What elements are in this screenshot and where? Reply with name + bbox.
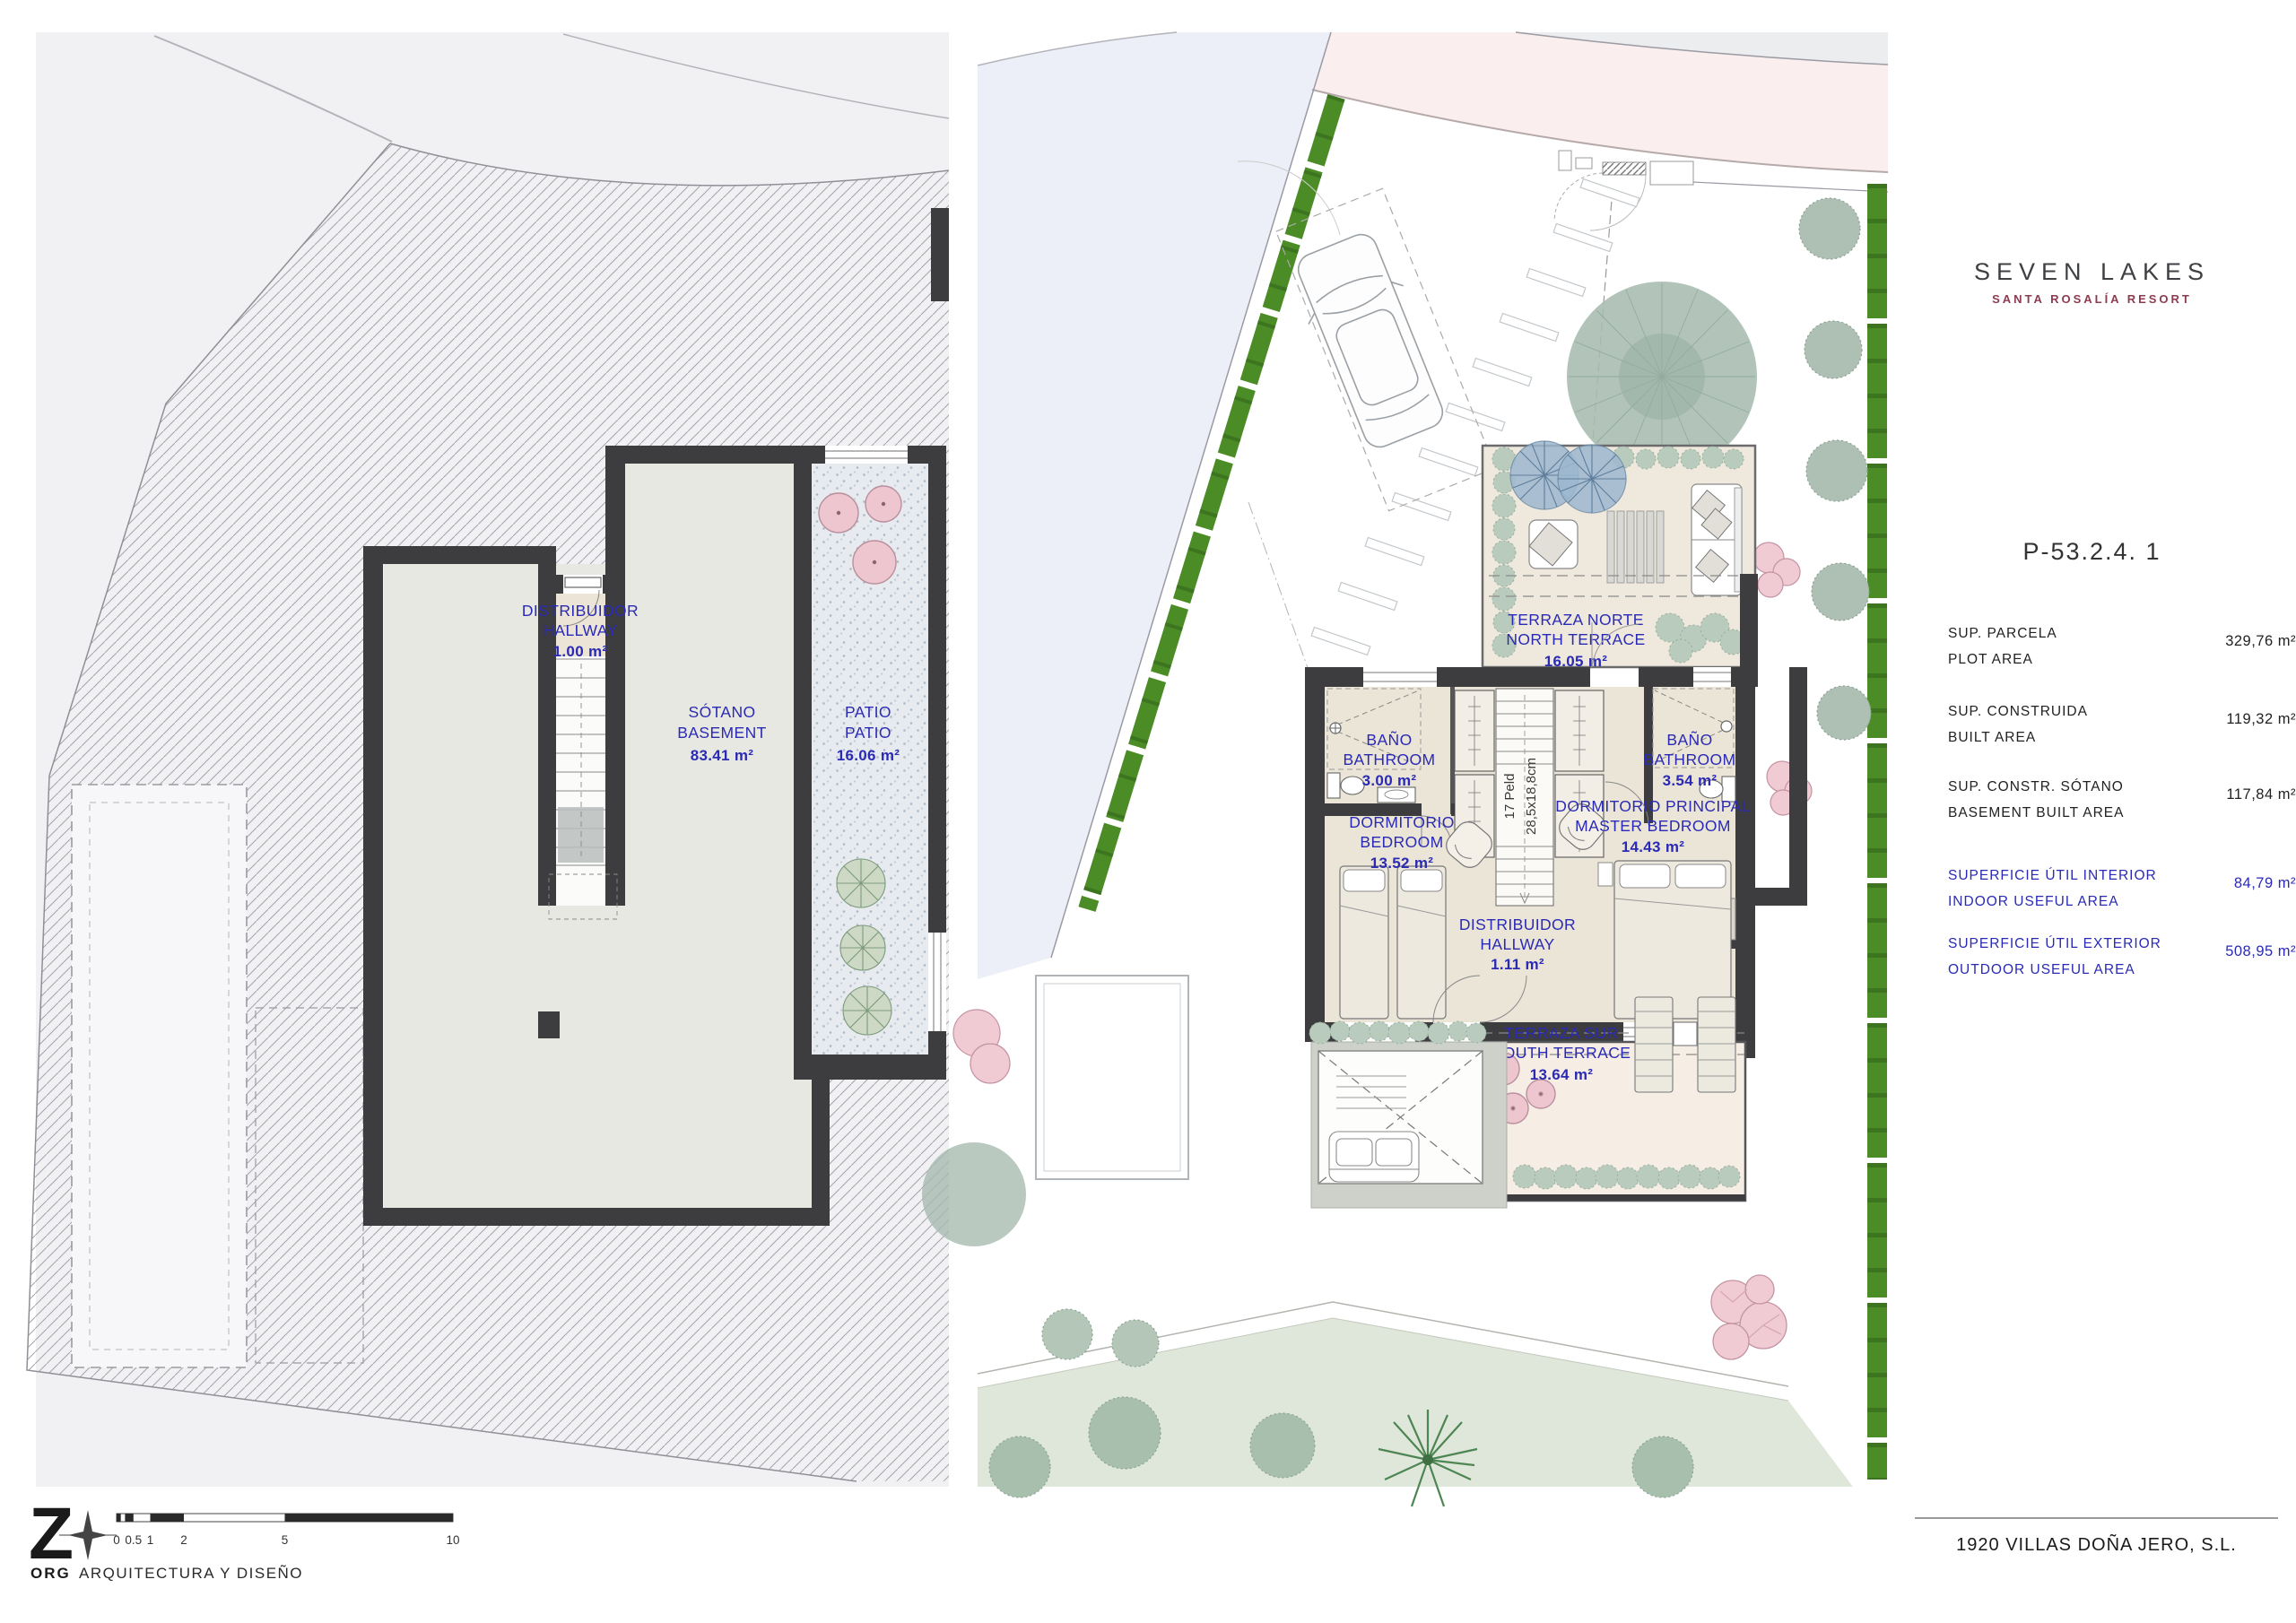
patio-void	[1309, 1021, 1507, 1208]
label-master-en: MASTER BEDROOM	[1575, 817, 1731, 835]
car	[1284, 226, 1457, 456]
label-basement-area: 83.41 m²	[691, 747, 753, 764]
architect-org: ORG	[30, 1565, 71, 1583]
scale-bar: 0 0.5 1 2 5 10	[113, 1514, 459, 1547]
label-master-es: DORMITORIO PRINCIPAL	[1555, 797, 1750, 815]
label-bathroom2-area: 3.54 m²	[1663, 772, 1718, 789]
south-terrace-bushes	[1513, 1165, 1740, 1189]
brand-name: SEVEN LAKES	[1888, 258, 2296, 286]
label-patio-area: 16.06 m²	[837, 747, 900, 764]
area-label-en: PLOT AREA	[1948, 647, 2244, 673]
area-label-es: SUP. PARCELA	[1948, 621, 2244, 647]
label-south-terrace-area: 13.64 m²	[1530, 1066, 1593, 1083]
label-basement-hallway-es: DISTRIBUIDOR	[522, 602, 639, 620]
stair-note-line2: 28,5x18,8cm	[1524, 758, 1539, 835]
label-basement-en: BASEMENT	[677, 724, 766, 742]
basement-plan-panel: DISTRIBUIDOR HALLWAY 1.00 m² SÓTANO BASE…	[27, 32, 949, 1487]
architect-logo: Z	[29, 1506, 72, 1562]
architect-name: ARQUITECTURA Y DISEÑO	[79, 1565, 303, 1583]
area-label-en: OUTDOOR USEFUL AREA	[1948, 957, 2244, 983]
label-south-terrace-en: SOUTH TERRACE	[1492, 1044, 1631, 1062]
area-row-basement: SUP. CONSTR. SÓTANO BASEMENT BUILT AREA …	[1948, 774, 2244, 826]
nightstand	[1598, 863, 1613, 886]
label-bedroom-es: DORMITORIO	[1349, 813, 1454, 831]
scale-tick-2: 2	[180, 1533, 187, 1547]
label-hallway-es: DISTRIBUIDOR	[1459, 916, 1576, 933]
area-value: 508,95 m²	[2225, 943, 2296, 960]
area-value: 329,76 m²	[2225, 633, 2296, 650]
label-bedroom-area: 13.52 m²	[1370, 855, 1433, 872]
area-value: 119,32 m²	[2226, 711, 2296, 728]
scale-tick-10: 10	[446, 1533, 459, 1547]
label-basement-es: SÓTANO	[689, 702, 756, 721]
pink-shrubs-west	[953, 1010, 1010, 1083]
label-patio-en: PATIO	[845, 724, 891, 742]
area-label-es: SUP. CONSTR. SÓTANO	[1948, 774, 2244, 800]
label-basement-hallway-area: 1.00 m²	[553, 643, 608, 660]
area-label-es: SUPERFICIE ÚTIL EXTERIOR	[1948, 931, 2244, 957]
patio-couch	[1329, 1132, 1419, 1182]
pool	[1036, 976, 1188, 1179]
label-bathroom1-en: BATHROOM	[1343, 751, 1435, 768]
basement-floor-strip	[794, 1080, 812, 1208]
plot-boundary-north	[1692, 182, 1888, 192]
label-patio-es: PATIO	[845, 703, 891, 721]
area-label-es: SUP. CONSTRUIDA	[1948, 699, 2244, 725]
edge-tree	[922, 1142, 1026, 1246]
label-bedroom-en: BEDROOM	[1360, 833, 1443, 851]
void-bushes-row	[1309, 1021, 1486, 1044]
bed-single-2	[1397, 866, 1446, 1019]
first-floor-panel: TERRAZA NORTE NORTH TERRACE 16.05 m²	[922, 32, 1888, 1506]
bed-single-1	[1340, 866, 1388, 1019]
scale-tick-05: 0.5	[125, 1533, 142, 1547]
area-label-en: BUILT AREA	[1948, 725, 2244, 751]
label-bathroom1-es: BAÑO	[1366, 730, 1412, 749]
label-bathroom2-es: BAÑO	[1666, 730, 1712, 749]
developer-divider	[1915, 1517, 2278, 1519]
bed-double	[1614, 861, 1731, 1019]
east-bushes	[1799, 198, 1871, 740]
north-terrace: TERRAZA NORTE NORTH TERRACE 16.05 m²	[1483, 441, 1758, 687]
basement-stair-floor	[556, 656, 605, 906]
street-area	[978, 32, 1331, 979]
label-bathroom2-en: BATHROOM	[1643, 751, 1735, 768]
label-hallway-en: HALLWAY	[1480, 935, 1554, 953]
label-north-terrace-es: TERRAZA NORTE	[1508, 611, 1644, 629]
scale-tick-0: 0	[113, 1533, 120, 1547]
area-row-built: SUP. CONSTRUIDA BUILT AREA 119,32 m²	[1948, 699, 2244, 751]
scale-tick-5: 5	[282, 1533, 289, 1547]
big-tree	[1567, 282, 1757, 472]
area-row-indoor: SUPERFICIE ÚTIL INTERIOR INDOOR USEFUL A…	[1948, 863, 2244, 915]
area-label-en: INDOOR USEFUL AREA	[1948, 889, 2244, 915]
area-label-en: BASEMENT BUILT AREA	[1948, 800, 2244, 826]
label-south-terrace-es: TERRAZA SUR	[1505, 1024, 1619, 1042]
pool-projection	[72, 785, 247, 1367]
plan-sheet: DISTRIBUIDOR HALLWAY 1.00 m² SÓTANO BASE…	[0, 0, 2296, 1623]
plot-reference: P-53.2.4. 1	[1888, 538, 2296, 566]
stair-note-line1: 17 Peld	[1502, 774, 1518, 820]
label-hallway-area: 1.11 m²	[1491, 956, 1544, 973]
label-master-area: 14.43 m²	[1622, 838, 1684, 855]
brand-subtitle: SANTA ROSALÍA RESORT	[1888, 292, 2296, 306]
info-sidebar: SEVEN LAKES SANTA ROSALÍA RESORT P-53.2.…	[1888, 0, 2296, 1487]
area-label-es: SUPERFICIE ÚTIL INTERIOR	[1948, 863, 2244, 889]
label-north-terrace-en: NORTH TERRACE	[1506, 630, 1645, 648]
area-value: 84,79 m²	[2234, 875, 2296, 892]
area-row-outdoor: SUPERFICIE ÚTIL EXTERIOR OUTDOOR USEFUL …	[1948, 931, 2244, 983]
pink-shrubs-southeast	[1711, 1275, 1787, 1359]
label-bathroom1-area: 3.00 m²	[1362, 772, 1417, 789]
basement-floor-upper	[625, 464, 794, 571]
area-value: 117,84 m²	[2226, 786, 2296, 803]
scale-tick-1: 1	[147, 1533, 154, 1547]
developer-name: 1920 VILLAS DOÑA JERO, S.L.	[1915, 1535, 2278, 1556]
label-basement-hallway-en: HALLWAY	[543, 621, 617, 639]
area-row-plot: SUP. PARCELA PLOT AREA 329,76 m²	[1948, 621, 2244, 673]
parasols	[1510, 441, 1626, 513]
